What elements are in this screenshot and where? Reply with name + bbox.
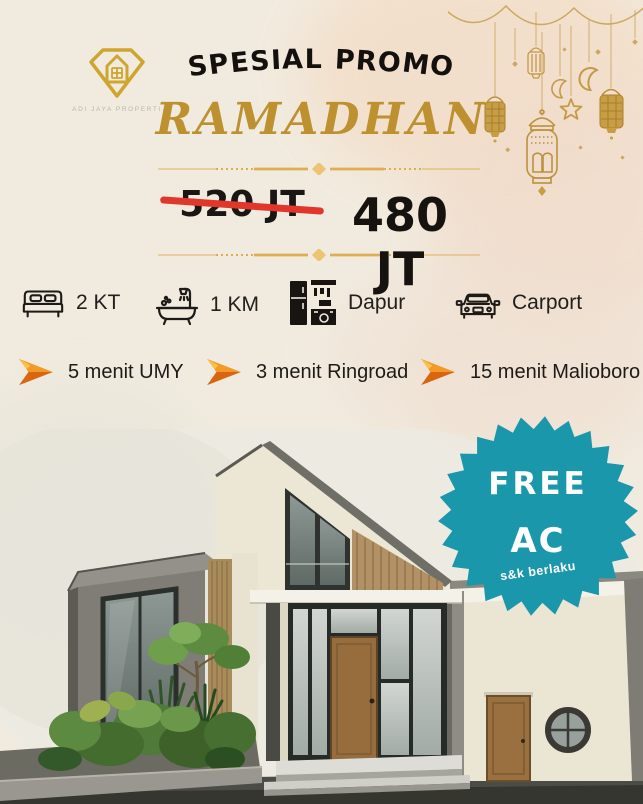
- location-item: 5 menit UMY: [16, 356, 184, 388]
- location-label: 3 menit Ringroad: [256, 361, 408, 384]
- direction-arrow-icon: [418, 356, 458, 388]
- bathtub-icon: [154, 283, 200, 327]
- feature-carport: Carport: [454, 283, 582, 323]
- feature-label: Dapur: [348, 291, 405, 315]
- direction-arrow-icon: [204, 356, 244, 388]
- location-label: 5 menit UMY: [68, 361, 184, 384]
- location-label: 15 menit Malioboro: [470, 361, 640, 384]
- feature-label: 1 KM: [210, 293, 259, 317]
- direction-arrow-icon: [16, 356, 56, 388]
- car-icon: [454, 283, 502, 323]
- promo-poster: ADI JAYA PROPERTI SPESIAL PROMO RAMADHAN…: [0, 0, 643, 804]
- free-ac-badge: FREE AC s&k berlaku: [438, 416, 638, 616]
- promo-title: RAMADHAN: [0, 94, 643, 145]
- old-price: 520 JT: [172, 184, 312, 225]
- entry-door: [331, 637, 377, 761]
- location-item: 3 menit Ringroad: [204, 356, 408, 388]
- kitchen-icon: [288, 278, 338, 328]
- promo-kicker: SPESIAL PROMO: [0, 44, 643, 75]
- bed-icon: [20, 283, 66, 323]
- feature-bedrooms: 2 KT: [20, 283, 120, 323]
- feature-kitchen: Dapur: [288, 278, 405, 328]
- feature-bathrooms: 1 KM: [154, 283, 259, 327]
- badge-line1: FREE: [438, 466, 638, 502]
- gold-divider: [158, 163, 480, 175]
- feature-label: Carport: [512, 291, 582, 315]
- house-entry-porch: [250, 590, 470, 796]
- location-item: 15 menit Malioboro: [418, 356, 640, 388]
- bunting-icon: [448, 4, 643, 25]
- feature-label: 2 KT: [76, 291, 120, 315]
